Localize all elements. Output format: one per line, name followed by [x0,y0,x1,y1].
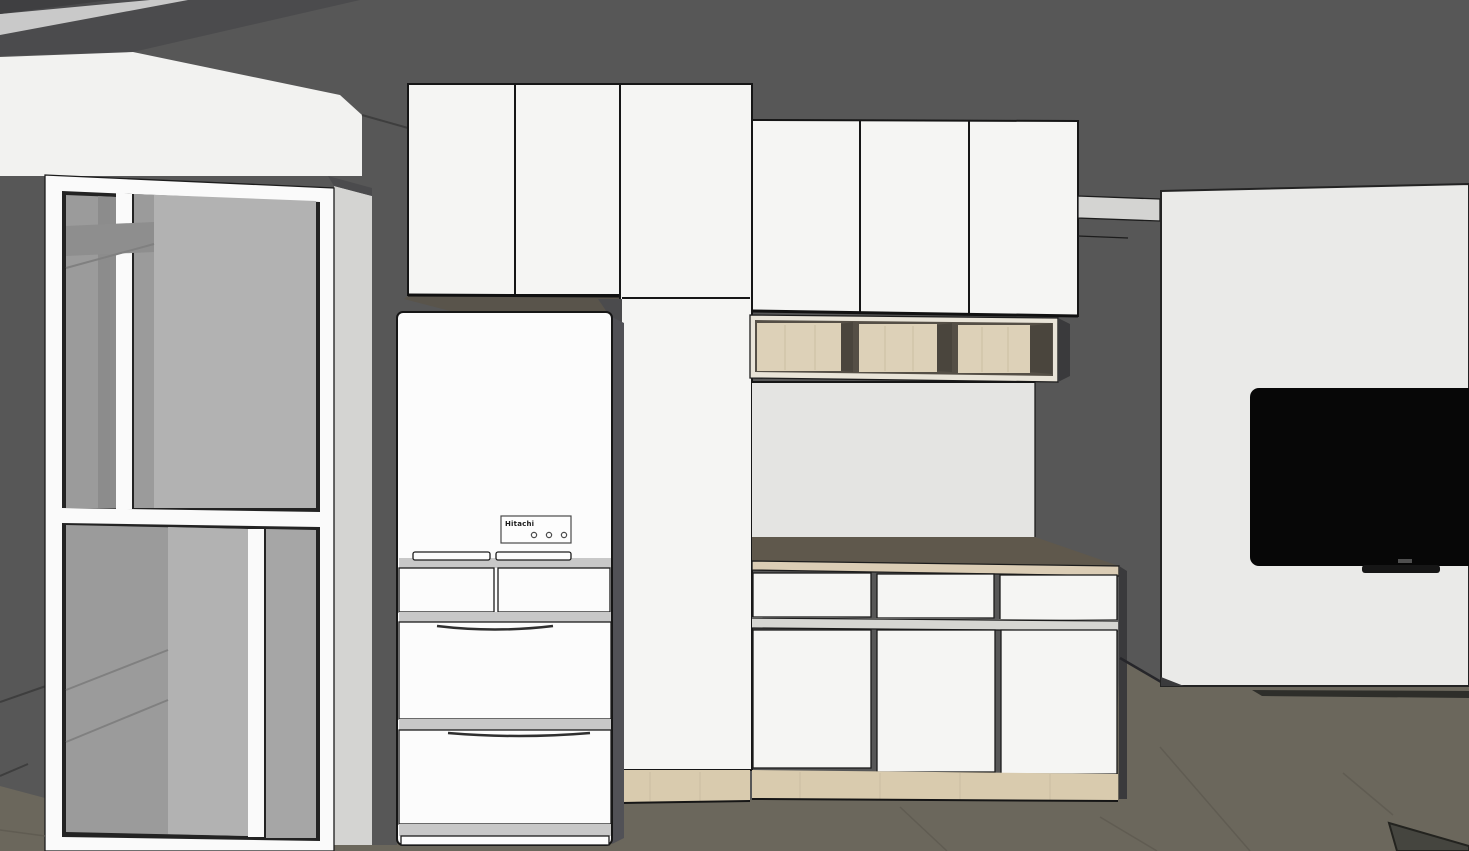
counter-drawer-1[interactable] [753,573,871,617]
base-door-1[interactable] [753,630,871,768]
shelf-bay-1-back[interactable] [757,323,841,371]
fridge-trim-strip-3 [399,719,611,730]
render-viewport: Hitachi [0,0,1469,851]
shelf-bay-3-back[interactable] [958,325,1030,373]
shelf-unit-end-return [1058,318,1070,382]
tv-stand [1362,565,1440,573]
shelf-bay-3-side [1030,323,1052,374]
fridge-indicator-light [546,532,551,537]
counter-drawer-3[interactable] [1000,575,1117,620]
counter-drawer-2[interactable] [877,574,994,618]
tv-screen[interactable] [1250,388,1469,566]
upper-cabinet-run-right[interactable] [752,120,1078,316]
fridge-freezer-door-left[interactable] [399,568,494,612]
fridge-freezer-door-right[interactable] [498,568,610,612]
base-door-3[interactable] [1001,630,1117,774]
fridge-handle-right[interactable] [496,552,571,560]
shelf-bay-1-side [841,322,853,372]
base-door-2[interactable] [877,630,995,772]
door-glass-upper-right [134,194,316,508]
cabinet-bottom-line [408,295,620,296]
fridge-indicator-light [561,532,566,537]
wall-ledge-strip [1078,196,1160,221]
counter-drawer-row[interactable] [752,573,1118,631]
cabinet-end-panel-shadow [1119,566,1127,799]
tv-wall-section [1161,184,1469,698]
fridge-bottom-band [399,824,611,836]
door-glass-lower-right [266,529,316,838]
tall-cabinet-front [620,84,752,770]
shelf-bay-2-side [937,323,952,372]
fridge-trim-strip-2 [399,612,611,622]
fridge-drawer-1[interactable] [399,622,611,719]
fridge-kick [401,836,609,845]
lit-wall-strip [334,186,372,845]
base-cabinet-plinth [752,770,1118,801]
fridge-handle-left[interactable] [413,552,490,560]
door-mullion-lower [248,529,264,837]
fridge-drawer-2[interactable] [399,730,611,824]
backsplash-panel [752,381,1035,537]
open-shelf-unit[interactable] [750,315,1070,382]
shelf-bay-2-back[interactable] [859,324,937,372]
kitchen-scene: Hitachi [0,0,1469,851]
door-glass-lower-left-light [168,527,248,836]
upper-right-cabinet-box [752,120,1078,316]
tall-cabinet-plinth [622,770,750,803]
fridge-brand-text: Hitachi [505,520,534,528]
fridge-indicator-light [531,532,536,537]
glass-sliding-door[interactable] [45,175,334,851]
refrigerator[interactable]: Hitachi [397,312,624,845]
tv-brand-mark [1398,559,1412,563]
upper-cabinet-run-left[interactable] [404,84,620,313]
glass-reflection-band [66,222,154,256]
